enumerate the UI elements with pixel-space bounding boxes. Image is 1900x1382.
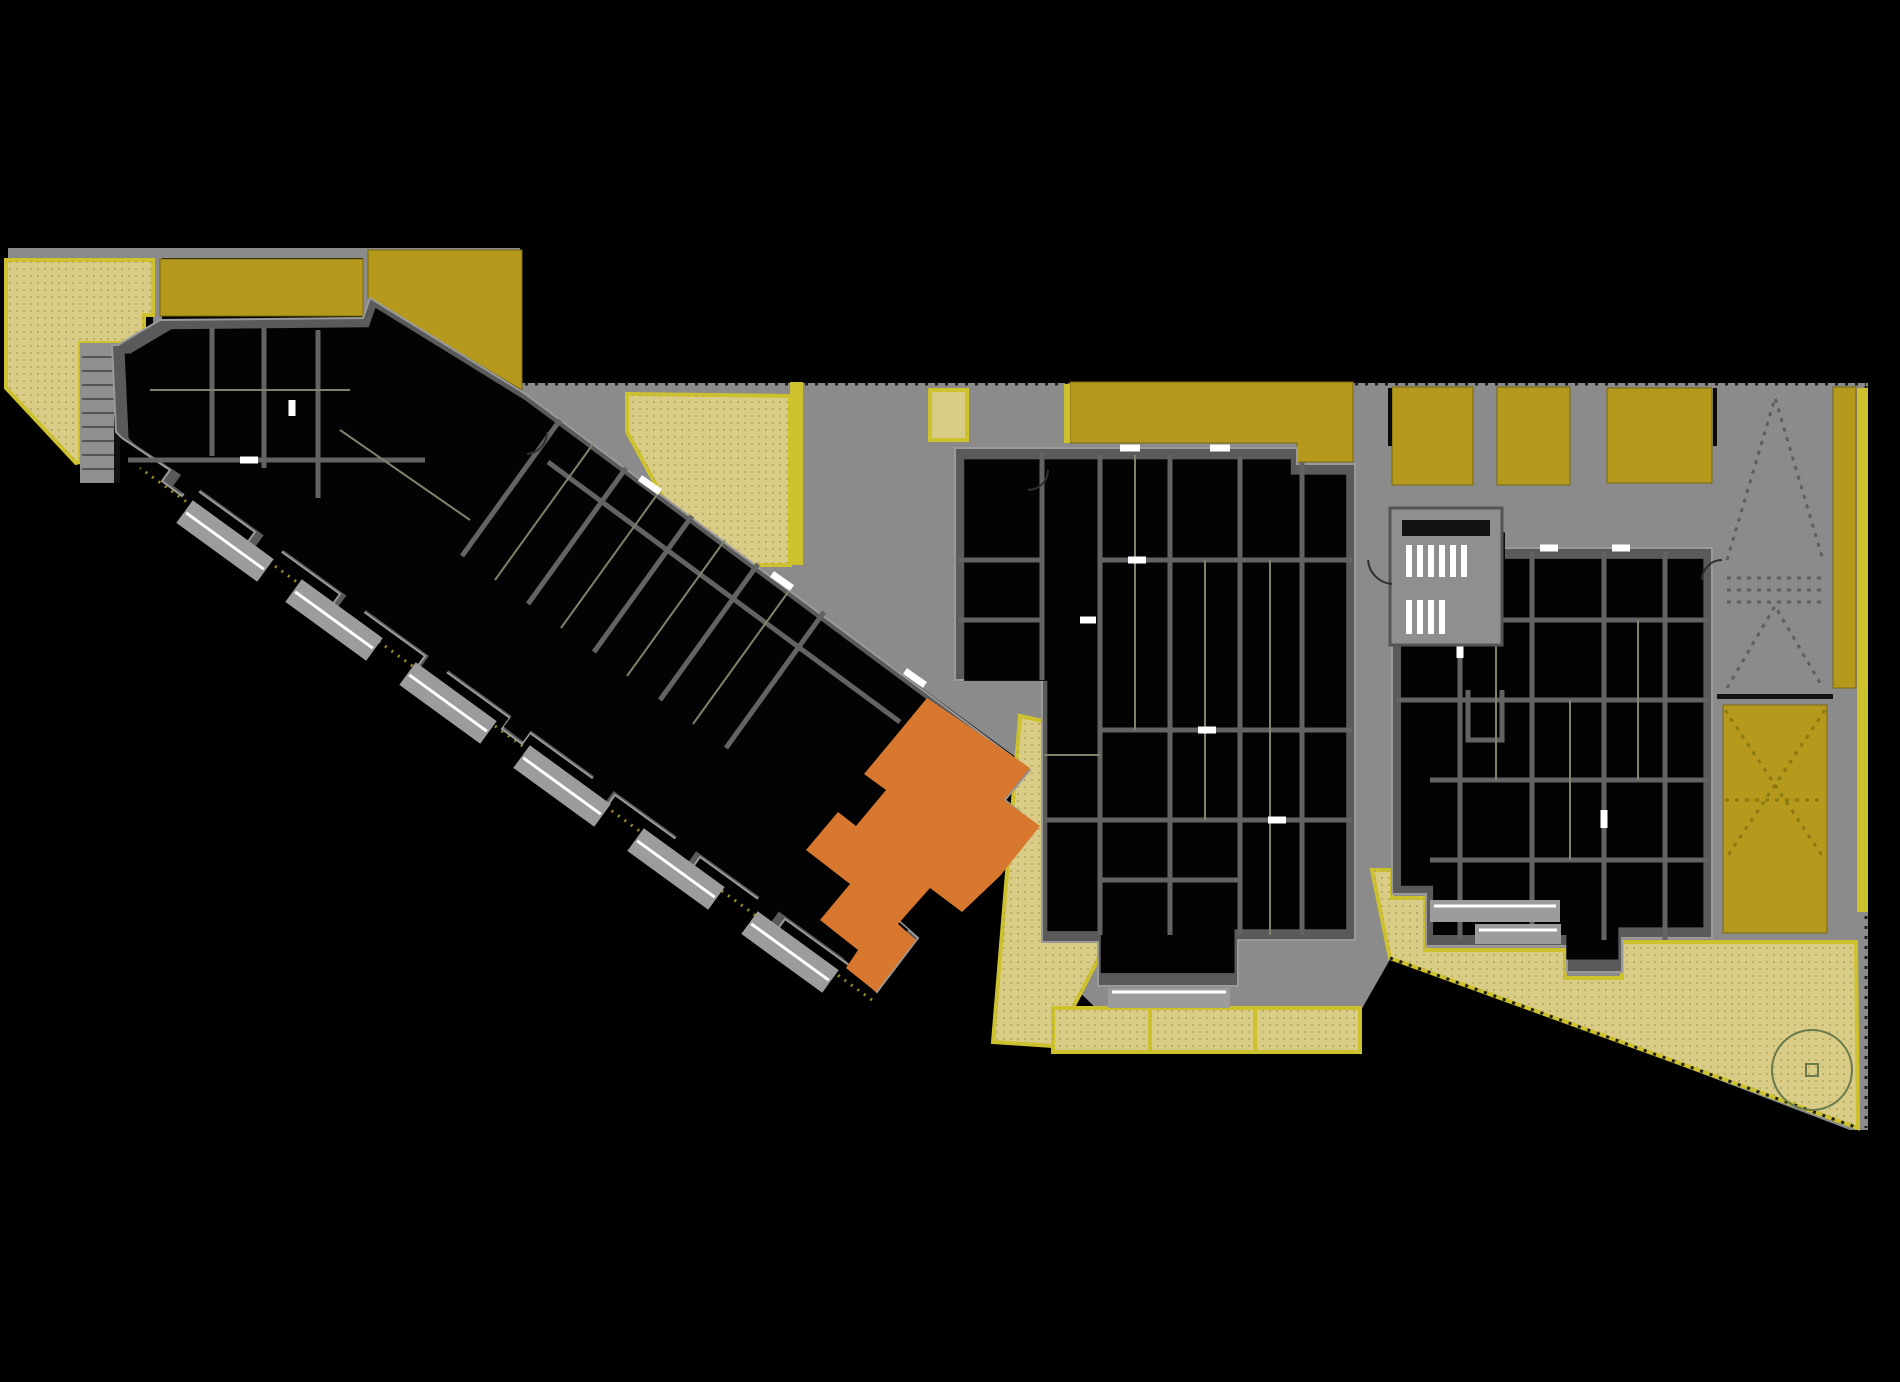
- yellow-strip-right-edge: [1857, 388, 1868, 912]
- terrace-east-3: [1607, 388, 1712, 483]
- terrace-east-2: [1497, 387, 1570, 485]
- terrace-west-1: [160, 259, 363, 316]
- right-building: [1390, 508, 1712, 972]
- terrace-east-1: [1392, 387, 1473, 485]
- yellow-strip-diagonal: [790, 382, 803, 565]
- terrace-east-edge: [1833, 387, 1856, 688]
- ramp-skylight: [1723, 705, 1827, 933]
- right-building-stair-core: [1390, 508, 1502, 645]
- garden-small-west-of-middle: [930, 390, 967, 440]
- site-plan-canvas: [0, 0, 1900, 1382]
- yellow-sliver-middle: [1064, 384, 1070, 443]
